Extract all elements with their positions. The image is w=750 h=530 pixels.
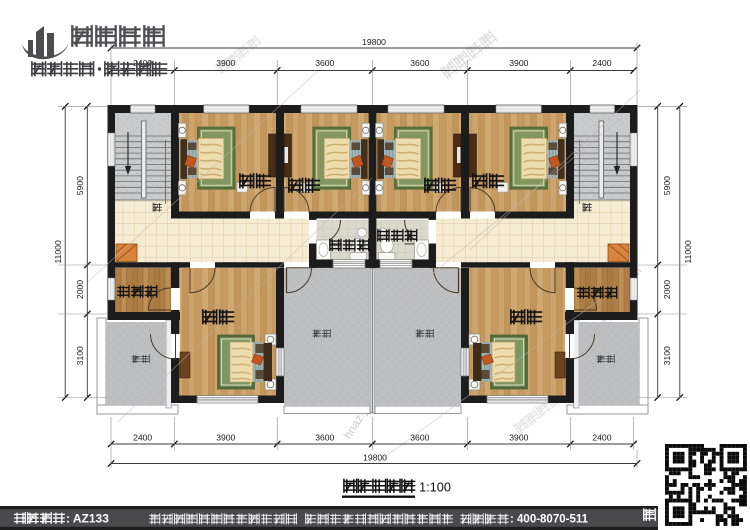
svg-text:3600: 3600 <box>315 58 334 68</box>
svg-text:: AZ133: : AZ133 <box>66 512 109 526</box>
svg-text:3100: 3100 <box>75 346 85 365</box>
svg-text:3600: 3600 <box>410 433 429 443</box>
svg-text:11000: 11000 <box>683 240 693 263</box>
svg-text:1:100: 1:100 <box>419 480 451 495</box>
svg-text:2400: 2400 <box>133 433 152 443</box>
svg-text:2400: 2400 <box>592 58 611 68</box>
svg-text:3900: 3900 <box>509 58 528 68</box>
svg-text:3900: 3900 <box>216 433 235 443</box>
svg-text:5900: 5900 <box>75 176 85 195</box>
svg-text:3600: 3600 <box>315 433 334 443</box>
svg-text:3900: 3900 <box>216 58 235 68</box>
svg-text:2000: 2000 <box>662 280 672 299</box>
svg-text:2000: 2000 <box>75 280 85 299</box>
svg-text:: 400-8070-511: : 400-8070-511 <box>510 514 589 526</box>
svg-text:2400: 2400 <box>592 433 611 443</box>
svg-text:19800: 19800 <box>362 37 386 47</box>
svg-text:11000: 11000 <box>53 240 63 263</box>
svg-text:3100: 3100 <box>662 346 672 365</box>
svg-text:3600: 3600 <box>410 58 429 68</box>
svg-text:5900: 5900 <box>662 176 672 195</box>
svg-text:19800: 19800 <box>363 453 387 463</box>
svg-text:3900: 3900 <box>509 433 528 443</box>
